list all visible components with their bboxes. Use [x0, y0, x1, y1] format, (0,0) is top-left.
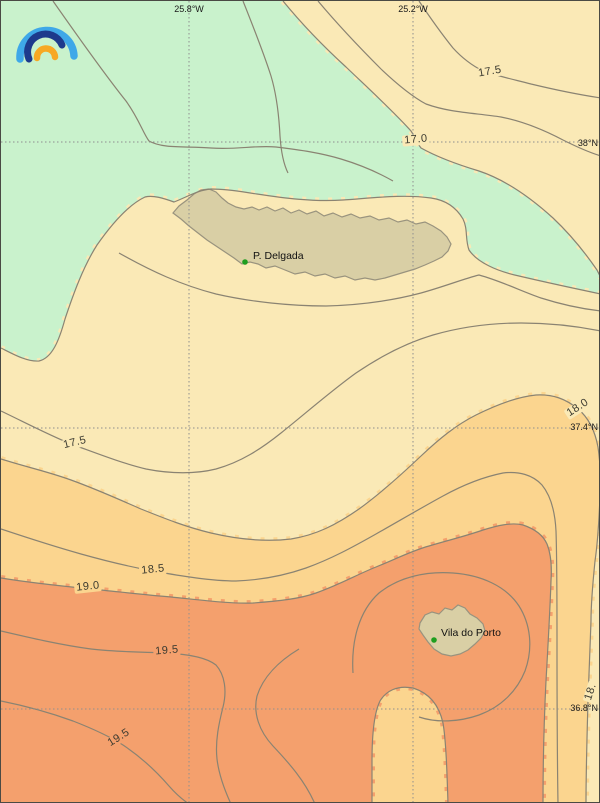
axis-label-38n: 38°N [578, 138, 598, 148]
temperature-contour-map[interactable]: 25.8°W 25.2°W 38°N 37.4°N 36.8°N 17.5 17… [0, 0, 600, 803]
map-layers [1, 1, 600, 803]
axis-label-25-2w: 25.2°W [398, 4, 428, 14]
city-label-p-delgada: P. Delgada [253, 251, 304, 262]
axis-label-37-4n: 37.4°N [570, 422, 598, 432]
rainbow-logo-icon [9, 13, 89, 65]
logo-inner-arc [37, 48, 55, 58]
city-label-vila-do-porto: Vila do Porto [441, 628, 501, 639]
axis-label-36-8n: 36.8°N [570, 703, 598, 713]
city-dot-vila-do-porto [431, 637, 437, 643]
city-dot-p-delgada [242, 259, 248, 265]
axis-label-25-8w: 25.8°W [174, 4, 204, 14]
